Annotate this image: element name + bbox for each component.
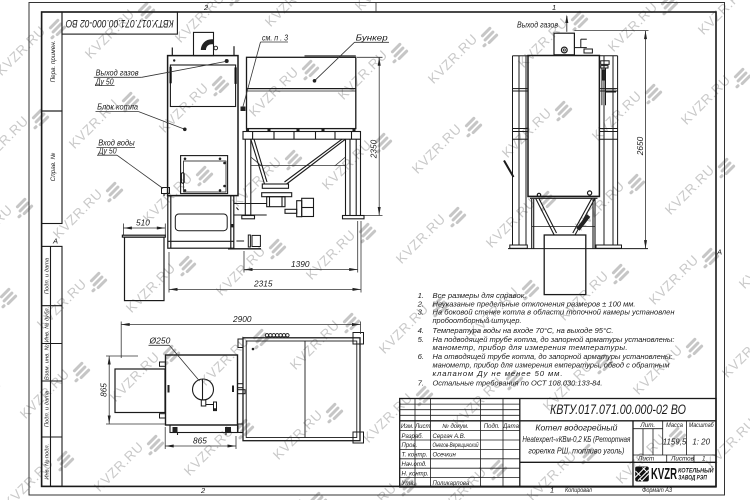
svg-text:Heatexpert-«КВм-0,2 КБ (Реторт: Heatexpert-«КВм-0,2 КБ (Ретортная [522,434,630,444]
svg-text:7.: 7. [418,378,424,387]
svg-text:Копировал: Копировал [565,487,592,494]
svg-text:Изм.: Изм. [401,424,414,430]
svg-text:Масса: Масса [666,422,683,429]
svg-text:горелка РШ, топливо уголь): горелка РШ, топливо уголь) [528,446,624,456]
svg-text:5.: 5. [418,335,424,344]
svg-text:ЗАВОД РЭП: ЗАВОД РЭП [678,475,707,482]
svg-text:Нач.отд.: Нач.отд. [402,462,427,468]
svg-text:Температура воды на входе 70°С: Температура воды на входе 70°С, на выход… [433,326,614,335]
svg-text:Ду 50: Ду 50 [95,76,114,86]
svg-text:Инв. № подл.: Инв. № подл. [44,444,50,480]
svg-text:Т. контр.: Т. контр. [402,453,428,459]
svg-text:2: 2 [200,486,206,495]
svg-text:Листов: Листов [670,456,695,463]
svg-text:Лист: Лист [414,424,430,430]
svg-text:см. п . 3: см. п . 3 [262,32,288,42]
svg-text:Сергач А.В.: Сергач А.В. [433,434,466,440]
svg-text:1: 1 [702,456,706,463]
svg-text:Ø250: Ø250 [149,336,171,346]
svg-text:3.: 3. [418,308,424,317]
svg-text:2: 2 [203,3,209,12]
svg-text:Поликарпова: Поликарпова [433,481,470,487]
svg-text:А: А [52,237,58,246]
svg-text:Инв. № дубл.: Инв. № дубл. [44,307,50,343]
svg-text:4.: 4. [418,326,424,335]
svg-text:Формат А3: Формат А3 [642,487,672,494]
svg-text:КВТУ.017.071.00.000-02 ВО: КВТУ.017.071.00.000-02 ВО [65,17,173,29]
svg-text:Подп.: Подп. [484,424,500,430]
svg-text:Ду 50: Ду 50 [98,146,117,156]
svg-text:865: 865 [99,383,109,397]
svg-text:А: А [716,248,722,257]
svg-text:№ докум.: № докум. [442,423,468,430]
svg-text:Подп. и дата: Подп. и дата [44,390,50,427]
svg-text:510: 510 [136,218,150,228]
svg-text:Выход газов: Выход газов [517,20,559,30]
svg-text:1390: 1390 [291,259,310,269]
svg-text:1: 1 [552,3,556,12]
svg-text:клапаном Ду не менее 50 мм.: клапаном Ду не менее 50 мм. [433,369,563,378]
svg-text:КОТЕЛЬНЫЙ: КОТЕЛЬНЫЙ [678,466,714,474]
svg-text:КВТУ.017.071.00.000-02 ВО: КВТУ.017.071.00.000-02 ВО [550,402,686,417]
svg-text:6.: 6. [418,352,424,361]
svg-text:Пров.: Пров. [402,443,418,449]
svg-text:Разраб.: Разраб. [402,434,424,440]
svg-text:865: 865 [193,435,207,445]
svg-text:Онегов-Верещинский: Онегов-Верещинский [433,442,479,449]
svg-text:Утв.: Утв. [401,481,416,487]
svg-text:манометр, прибор для измерения: манометр, прибор для измерения температу… [433,343,628,352]
svg-text:Осечкин: Осечкин [433,453,457,459]
svg-text:Перв. примен.: Перв. примен. [50,41,57,83]
svg-text:Дата: Дата [502,424,519,430]
svg-text:2350: 2350 [369,139,379,159]
svg-text:Блок котла: Блок котла [97,102,138,112]
svg-text:Н. контр.: Н. контр. [402,471,429,477]
svg-text:2650: 2650 [635,136,645,156]
svg-text:Бункер: Бункер [356,33,388,43]
svg-text:Котел водогрейный: Котел водогрейный [535,423,617,433]
svg-text:Справ. №: Справ. № [50,153,57,182]
svg-text:1: 20: 1: 20 [692,437,710,446]
svg-text:пробоотборный штуцер.: пробоотборный штуцер. [433,316,522,325]
svg-text:Масштаб: Масштаб [689,421,714,429]
svg-text:2315: 2315 [253,279,273,289]
svg-text:2900: 2900 [232,314,252,324]
svg-text:Взам. инв. №: Взам. инв. № [44,344,50,380]
svg-text:Лист: Лист [637,456,654,463]
svg-text:Подп. и дата: Подп. и дата [44,257,50,294]
svg-text:Остальные требования по ОСТ 10: Остальные требования по ОСТ 108.030.133-… [433,378,603,387]
svg-text:Лит.: Лит. [639,422,655,429]
svg-text:1159,5: 1159,5 [663,437,687,446]
svg-text:KVZR: KVZR [651,466,677,483]
